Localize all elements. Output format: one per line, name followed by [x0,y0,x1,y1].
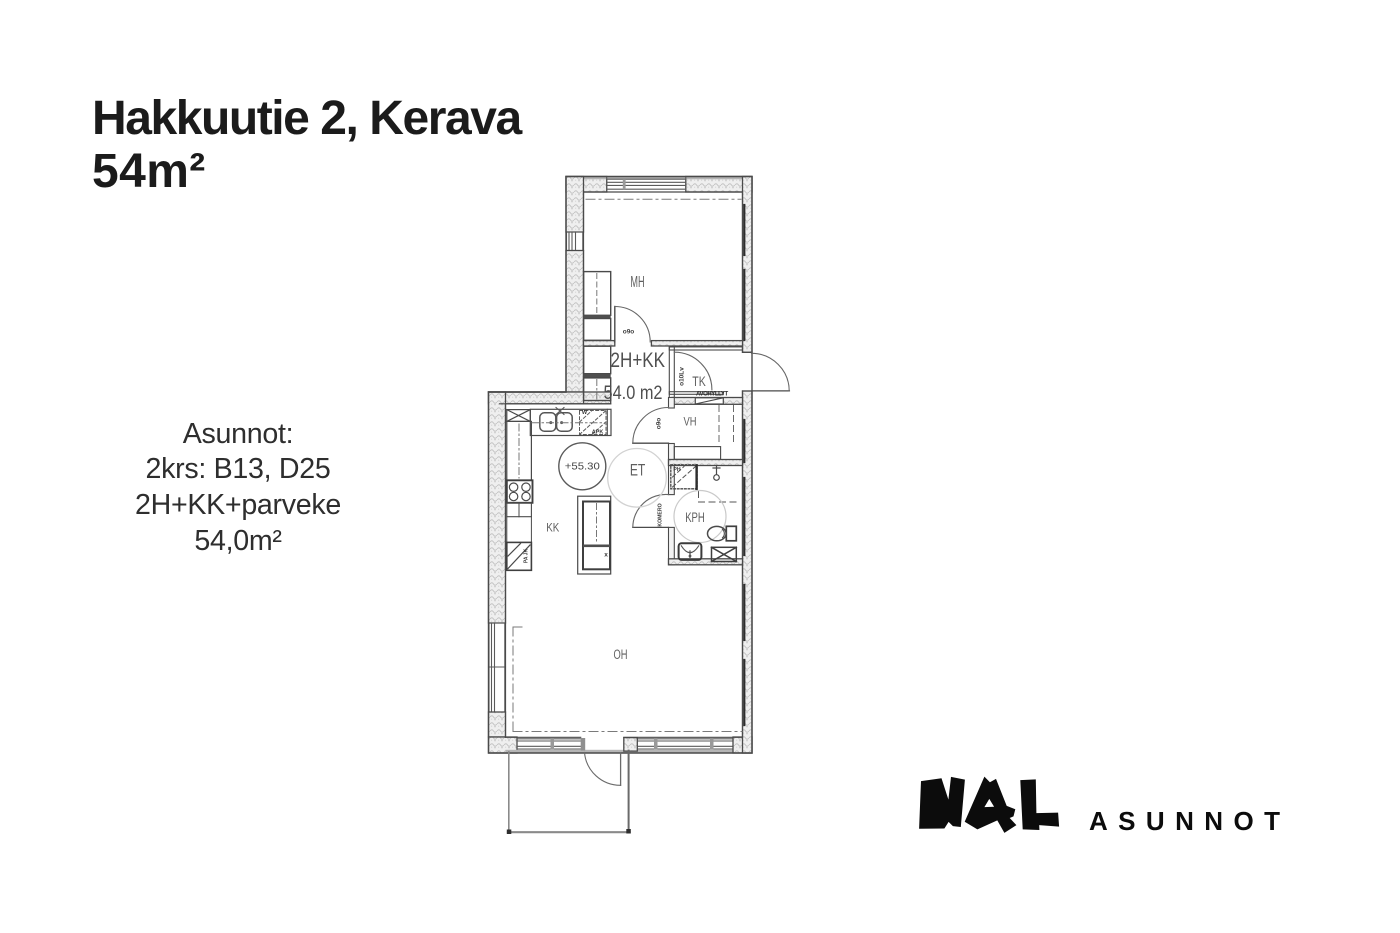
svg-text:KPH: KPH [685,509,705,525]
svg-text:o10Lv: o10Lv [679,367,686,386]
svg-text:ASUNNOT: ASUNNOT [1089,806,1290,836]
svg-text:TK: TK [692,374,706,389]
svg-text:x: x [604,552,608,559]
svg-text:PH: PH [673,467,680,473]
svg-text:OH: OH [614,647,628,663]
svg-text:PA JK: PA JK [524,549,530,564]
svg-text:+55.30: +55.30 [565,462,600,473]
svg-text:AVOHYLLYT: AVOHYLLYT [696,392,728,398]
svg-text:o9o: o9o [623,329,635,336]
svg-text:KOMERO: KOMERO [658,503,664,526]
svg-text:APK: APK [592,430,604,436]
svg-text:W: W [582,410,588,416]
svg-text:KK: KK [546,521,560,535]
svg-text:MH: MH [630,274,644,291]
svg-text:54.0 m2: 54.0 m2 [604,383,663,404]
svg-text:ET: ET [630,461,646,479]
svg-text:VH: VH [684,414,697,428]
svg-text:2H+KK: 2H+KK [611,348,666,372]
svg-text:o9o: o9o [656,418,663,430]
